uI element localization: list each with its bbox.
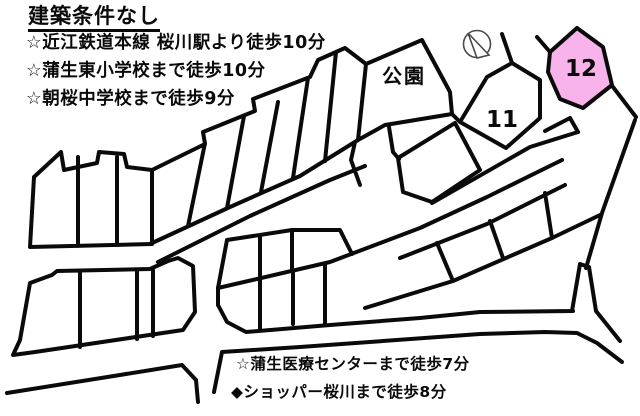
footer-note-shopping: ◆ショッパー桜川まで徒歩8分 bbox=[231, 384, 447, 401]
footer-note-medical: ☆蒲生医療センターまで徒歩7分 bbox=[236, 356, 470, 373]
feature-note-station: ☆近江鉄道本線 桜川駅より徒歩10分 bbox=[26, 34, 326, 53]
map-lot-lines bbox=[7, 28, 636, 402]
feature-note-juniorhigh: ☆朝桜中学校まで徒歩9分 bbox=[26, 90, 235, 109]
park-label: 公園 bbox=[382, 65, 426, 87]
lot-block-bottom-left bbox=[13, 258, 195, 355]
lot-block-upper-left bbox=[30, 152, 152, 247]
real-estate-flyer: 建築条件なし ☆近江鉄道本線 桜川駅より徒歩10分 ☆蒲生東小学校まで徒歩10分… bbox=[0, 0, 640, 416]
lot-12-label: 12 bbox=[565, 57, 597, 82]
page-title: 建築条件なし bbox=[28, 5, 160, 32]
compass-icon bbox=[464, 31, 491, 59]
compass-needle bbox=[468, 33, 489, 58]
lot-notch bbox=[545, 118, 578, 132]
feature-note-elementary: ☆蒲生東小学校まで徒歩10分 bbox=[26, 62, 266, 81]
lot-strip-bottom-center-top bbox=[218, 230, 352, 288]
lot-11-label: 11 bbox=[486, 108, 518, 133]
road-bottom-left bbox=[7, 365, 198, 402]
lot-band-right bbox=[218, 120, 635, 308]
lot-pentagon-center bbox=[398, 123, 480, 202]
